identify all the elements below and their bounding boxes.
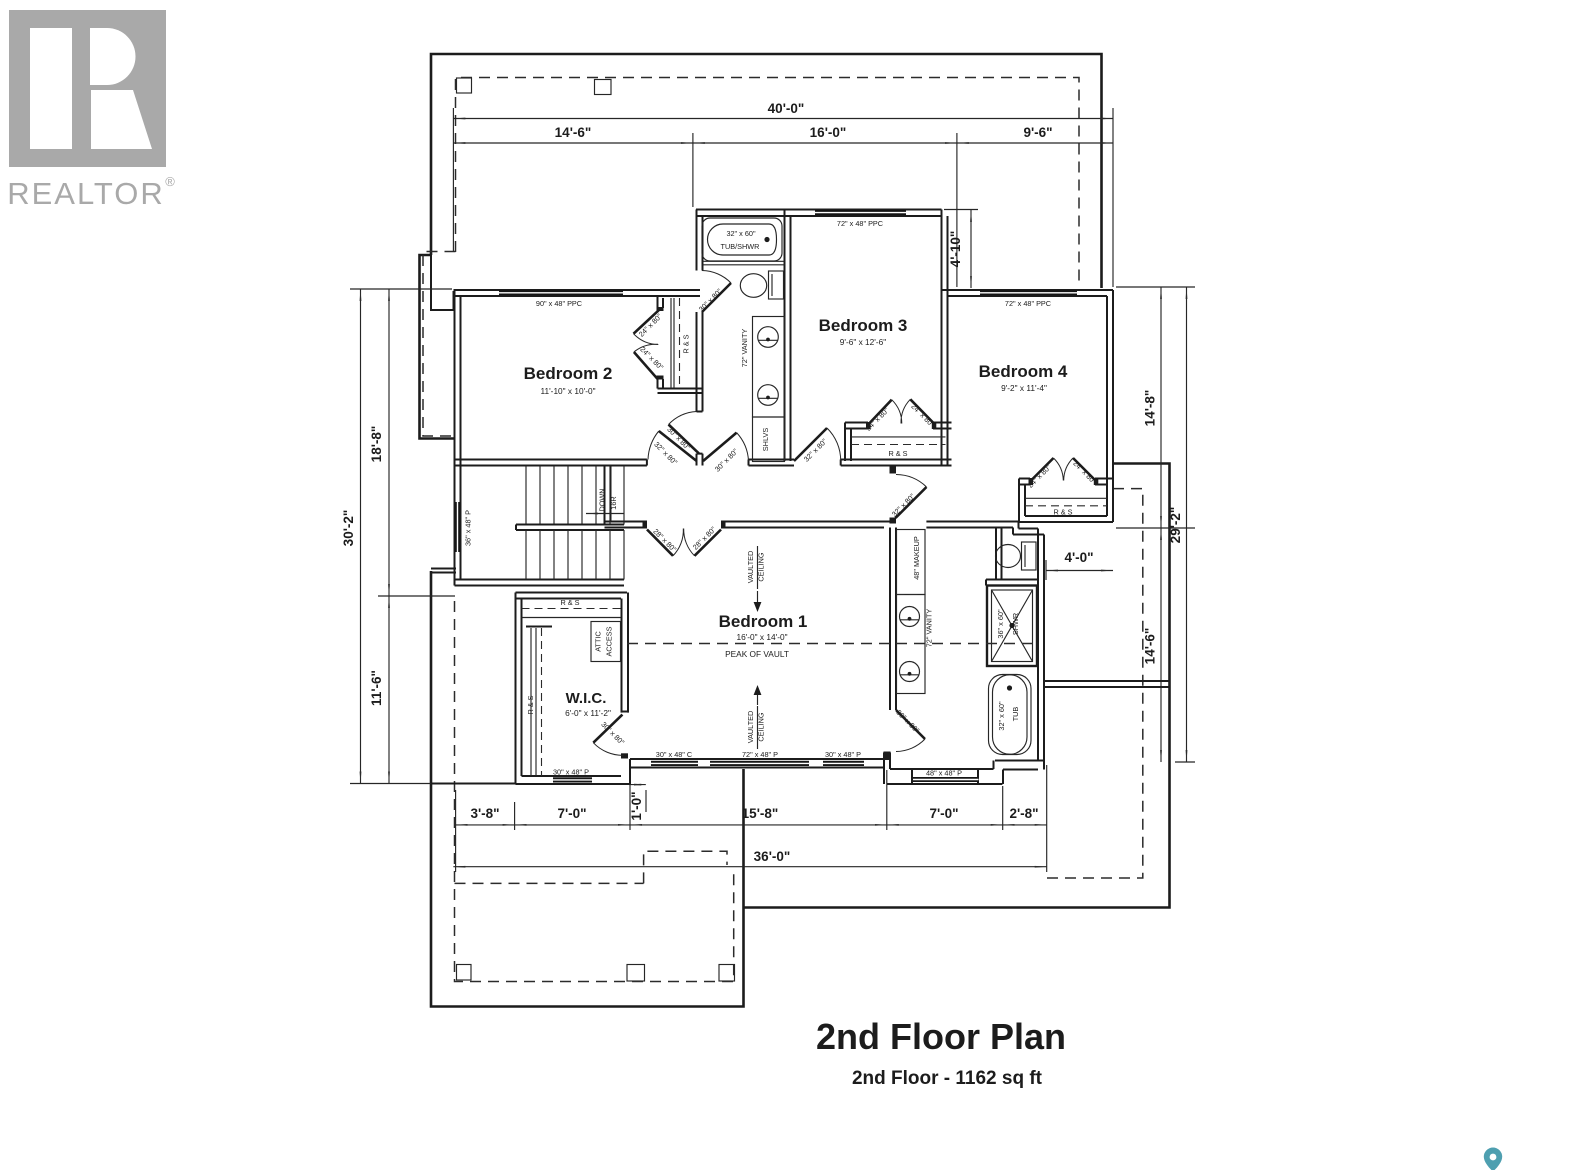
svg-text:24" x 80": 24" x 80" bbox=[637, 311, 664, 338]
svg-text:TUB: TUB bbox=[1011, 707, 1020, 722]
svg-text:24" x 80": 24" x 80" bbox=[1026, 462, 1053, 489]
svg-text:ACCESS: ACCESS bbox=[605, 626, 614, 656]
svg-text:ATTIC: ATTIC bbox=[594, 631, 603, 652]
svg-text:9'-6" x 12'-6": 9'-6" x 12'-6" bbox=[840, 337, 886, 347]
svg-text:24" x 80": 24" x 80" bbox=[638, 345, 665, 372]
svg-text:®: ® bbox=[165, 174, 175, 189]
svg-text:R & S: R & S bbox=[888, 449, 907, 458]
svg-text:30'-2": 30'-2" bbox=[341, 510, 356, 547]
svg-text:24" x 80": 24" x 80" bbox=[864, 405, 891, 432]
svg-text:VAULTED: VAULTED bbox=[746, 551, 755, 584]
svg-text:R & S: R & S bbox=[682, 334, 691, 353]
svg-text:30" x 48" P: 30" x 48" P bbox=[553, 768, 589, 777]
svg-text:72" VANITY: 72" VANITY bbox=[740, 329, 749, 368]
svg-text:72" x 48" PPC: 72" x 48" PPC bbox=[1005, 299, 1051, 308]
svg-text:90" x 48" PPC: 90" x 48" PPC bbox=[536, 299, 582, 308]
svg-text:7'-0": 7'-0" bbox=[929, 806, 958, 821]
svg-text:16'-0" x 14'-0": 16'-0" x 14'-0" bbox=[736, 632, 787, 642]
svg-text:18'-8": 18'-8" bbox=[369, 426, 384, 463]
svg-text:SHWR: SHWR bbox=[1011, 613, 1020, 635]
svg-text:14'-6": 14'-6" bbox=[555, 125, 592, 140]
svg-text:24" x 80": 24" x 80" bbox=[1071, 459, 1098, 486]
svg-text:Bedroom 1: Bedroom 1 bbox=[719, 612, 808, 631]
svg-text:R & S: R & S bbox=[526, 695, 535, 714]
svg-text:11'-10" x 10'-0": 11'-10" x 10'-0" bbox=[540, 386, 595, 396]
svg-text:2nd Floor - 1162 sq ft: 2nd Floor - 1162 sq ft bbox=[852, 1068, 1043, 1089]
svg-text:VAULTED: VAULTED bbox=[746, 711, 755, 744]
svg-text:SHLVS: SHLVS bbox=[761, 428, 770, 452]
svg-text:30" x 80": 30" x 80" bbox=[697, 286, 724, 313]
svg-text:REALTOR: REALTOR bbox=[7, 176, 165, 211]
svg-text:2'-8": 2'-8" bbox=[1009, 806, 1038, 821]
svg-text:16'-0": 16'-0" bbox=[810, 125, 847, 140]
svg-text:30" x 80": 30" x 80" bbox=[894, 708, 921, 735]
svg-text:32" x 80": 32" x 80" bbox=[890, 491, 917, 518]
svg-text:30" x 48" C: 30" x 48" C bbox=[656, 750, 692, 759]
svg-text:1'-0": 1'-0" bbox=[629, 791, 644, 820]
svg-text:TUB/SHWR: TUB/SHWR bbox=[721, 242, 760, 251]
svg-text:36'-0": 36'-0" bbox=[754, 849, 791, 864]
svg-text:6'-0" x 11'-2": 6'-0" x 11'-2" bbox=[565, 708, 611, 718]
svg-text:9'-6": 9'-6" bbox=[1023, 125, 1052, 140]
svg-text:72" VANITY: 72" VANITY bbox=[925, 609, 934, 648]
svg-text:48" MAKEUP: 48" MAKEUP bbox=[912, 536, 921, 580]
svg-text:14'-8": 14'-8" bbox=[1143, 390, 1158, 427]
svg-text:28" x 80": 28" x 80" bbox=[651, 527, 678, 554]
svg-text:9'-2" x 11'-4": 9'-2" x 11'-4" bbox=[1001, 383, 1047, 393]
svg-text:PEAK OF VAULT: PEAK OF VAULT bbox=[725, 649, 789, 659]
svg-text:4'-10": 4'-10" bbox=[948, 231, 963, 268]
svg-text:36" x 48" P: 36" x 48" P bbox=[464, 510, 473, 546]
svg-text:32" x 60": 32" x 60" bbox=[997, 701, 1006, 731]
svg-text:Bedroom 4: Bedroom 4 bbox=[979, 362, 1068, 381]
svg-text:32" x 60": 32" x 60" bbox=[726, 229, 756, 238]
svg-text:4'-0": 4'-0" bbox=[1064, 550, 1093, 565]
svg-text:24" x 80": 24" x 80" bbox=[909, 402, 936, 429]
svg-text:14'-6": 14'-6" bbox=[1143, 628, 1158, 665]
svg-text:15'-8": 15'-8" bbox=[742, 806, 779, 821]
svg-text:40'-0": 40'-0" bbox=[768, 101, 805, 116]
svg-text:30" x 48" P: 30" x 48" P bbox=[825, 750, 861, 759]
svg-text:7'-0": 7'-0" bbox=[557, 806, 586, 821]
svg-text:3'-8": 3'-8" bbox=[470, 806, 499, 821]
svg-text:16R: 16R bbox=[609, 496, 618, 509]
svg-text:72" x 48" PPC: 72" x 48" PPC bbox=[837, 219, 883, 228]
svg-text:2nd Floor Plan: 2nd Floor Plan bbox=[816, 1016, 1066, 1057]
svg-text:DOWN: DOWN bbox=[598, 488, 607, 511]
svg-text:Bedroom 2: Bedroom 2 bbox=[524, 364, 613, 383]
svg-text:Bedroom 3: Bedroom 3 bbox=[819, 316, 908, 335]
svg-text:W.I.C.: W.I.C. bbox=[566, 690, 607, 707]
svg-text:R & S: R & S bbox=[1053, 508, 1072, 517]
svg-text:48" x 48" P: 48" x 48" P bbox=[926, 769, 962, 778]
svg-text:36" x 60": 36" x 60" bbox=[996, 609, 1005, 639]
svg-text:72" x 48" P: 72" x 48" P bbox=[742, 750, 778, 759]
svg-text:29'-2": 29'-2" bbox=[1168, 507, 1183, 544]
svg-text:11'-6": 11'-6" bbox=[369, 670, 384, 706]
svg-text:R & S: R & S bbox=[560, 598, 579, 607]
